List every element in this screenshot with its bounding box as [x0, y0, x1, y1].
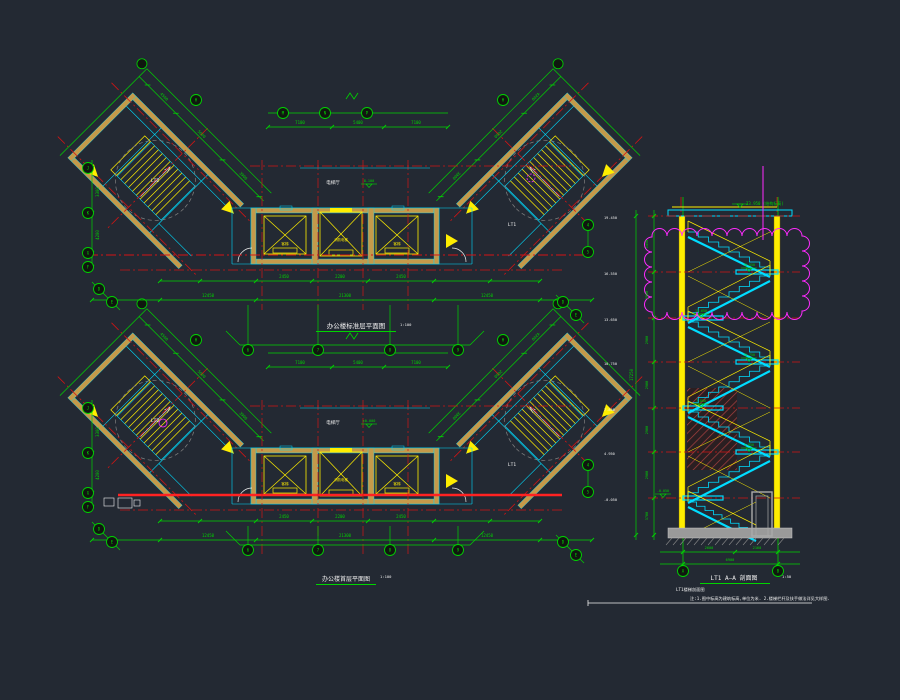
svg-text:4.950: 4.950	[604, 452, 615, 456]
svg-text:电梯厅: 电梯厅	[326, 179, 340, 186]
svg-text:2900: 2900	[645, 471, 649, 479]
svg-text:1450: 1450	[645, 240, 649, 248]
svg-text:2200: 2200	[335, 514, 345, 519]
svg-text:8.100: 8.100	[364, 179, 375, 183]
notes-text: 注:1.图中标高为建筑标高,单位为米. 2.楼梯栏杆及扶手做法详见大样图.	[690, 595, 830, 602]
svg-text:电梯厅: 电梯厅	[326, 419, 340, 426]
svg-text:7100: 7100	[295, 360, 305, 365]
svg-text:2900: 2900	[645, 381, 649, 389]
top-plan-scale: 1:100	[400, 322, 412, 327]
svg-text:J: J	[87, 406, 89, 411]
svg-text:2450: 2450	[396, 274, 406, 279]
section-subtitle: LT1楼梯剖面图	[676, 586, 705, 593]
top-plan-title: 办公楼标准层平面图	[327, 321, 386, 330]
svg-text:±0.000: ±0.000	[363, 419, 376, 423]
svg-text:2900: 2900	[645, 291, 649, 299]
svg-text:10.750: 10.750	[743, 353, 755, 357]
svg-text:5400: 5400	[353, 120, 363, 125]
svg-text:2450: 2450	[279, 274, 289, 279]
svg-text:16.550: 16.550	[743, 263, 755, 267]
svg-text:7100: 7100	[295, 120, 305, 125]
svg-text:5400: 5400	[353, 360, 363, 365]
model-space-background	[0, 0, 900, 700]
svg-text:2200: 2200	[335, 274, 345, 279]
svg-text:12450: 12450	[481, 533, 494, 538]
cad-canvas[interactable]: 4500 5600 3900 客梯	[0, 0, 900, 700]
svg-text:4.950: 4.950	[744, 443, 754, 447]
section-title: LT1 A—A 剖面图	[711, 574, 758, 582]
svg-text:12450: 12450	[202, 293, 215, 298]
svg-text:2900: 2900	[645, 426, 649, 434]
section-scale: 1:50	[782, 574, 792, 579]
svg-text:7100: 7100	[411, 360, 421, 365]
svg-text:3300: 3300	[95, 187, 100, 197]
svg-text:2450: 2450	[279, 514, 289, 519]
svg-text:3700: 3700	[645, 512, 649, 520]
svg-text:13.650: 13.650	[695, 309, 707, 313]
svg-text:16.550: 16.550	[604, 272, 617, 276]
svg-text:13.650: 13.650	[604, 318, 617, 322]
svg-text:10.750: 10.750	[604, 362, 617, 366]
bottom-plan-scale: 1:100	[380, 574, 392, 579]
svg-text:2600: 2600	[705, 546, 714, 550]
svg-text:-0.050: -0.050	[657, 489, 669, 493]
svg-text:-0.050: -0.050	[604, 498, 617, 502]
svg-text:4200: 4200	[95, 230, 100, 240]
bottom-plan-title: 办公楼首层平面图	[322, 575, 370, 583]
svg-text:2160: 2160	[753, 546, 762, 550]
svg-text:23.950 (结构标高): 23.950 (结构标高)	[746, 200, 784, 206]
svg-text:2450: 2450	[396, 514, 406, 519]
cad-viewport[interactable]: 4500 5600 3900 客梯	[0, 0, 900, 700]
svg-text:17250: 17250	[629, 368, 634, 381]
svg-text:LT1: LT1	[508, 462, 516, 468]
svg-text:21300: 21300	[339, 533, 352, 538]
svg-text:7.850: 7.850	[696, 399, 706, 403]
svg-text:3300: 3300	[95, 427, 100, 437]
svg-text:7100: 7100	[411, 120, 421, 125]
svg-text:4200: 4200	[95, 470, 100, 480]
svg-text:6900: 6900	[726, 558, 735, 562]
svg-text:2900: 2900	[645, 336, 649, 344]
svg-text:7.850: 7.850	[604, 408, 615, 412]
svg-text:12450: 12450	[481, 293, 494, 298]
svg-text:19.450: 19.450	[604, 216, 617, 220]
svg-text:LT2: LT2	[151, 418, 159, 424]
svg-text:12450: 12450	[202, 533, 215, 538]
svg-text:LT2: LT2	[151, 178, 159, 184]
svg-text:LT1: LT1	[508, 222, 516, 228]
svg-text:21300: 21300	[339, 293, 352, 298]
svg-text:J: J	[87, 166, 89, 171]
